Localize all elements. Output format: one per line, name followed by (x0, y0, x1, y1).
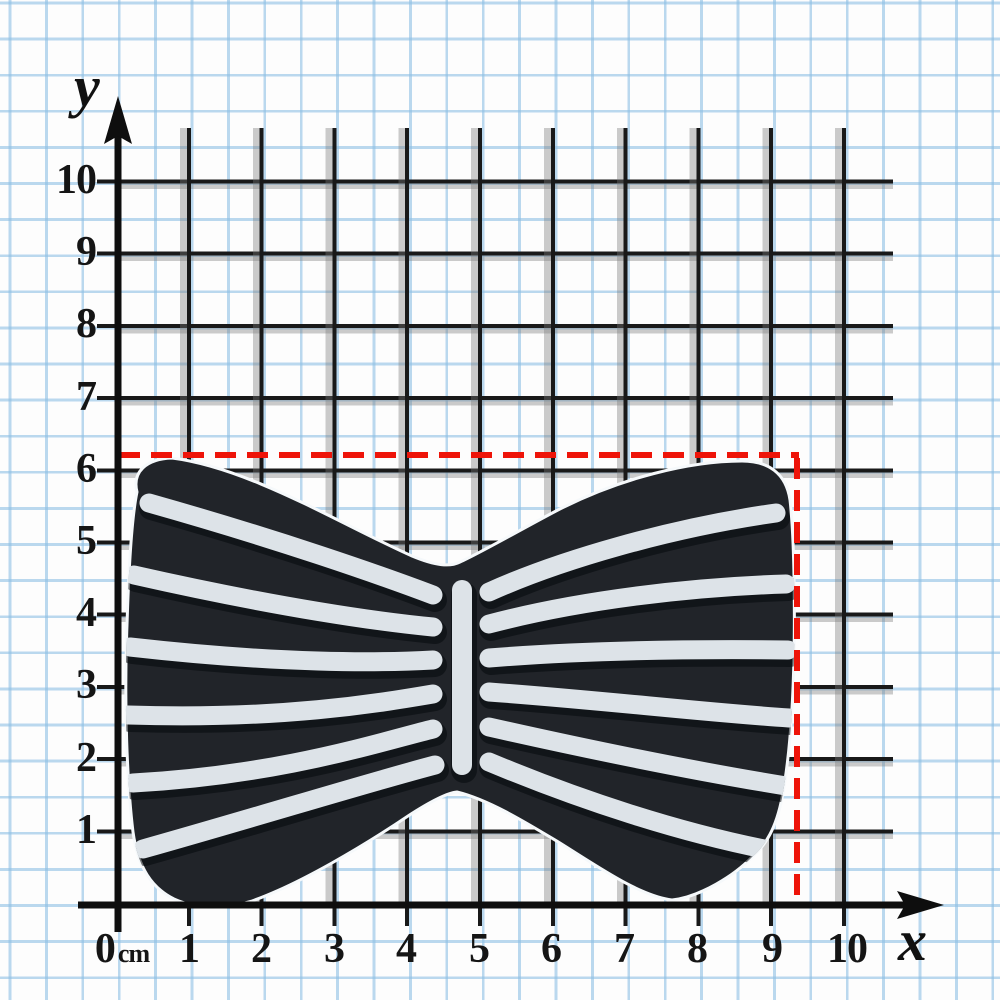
unit-label-cm: cm (118, 939, 149, 968)
y-tick-8: 8 (30, 303, 96, 345)
y-tick-1: 1 (30, 809, 96, 851)
x-tick-4: 4 (396, 928, 416, 970)
y-tick-2: 2 (30, 737, 96, 779)
x-tick-3: 3 (324, 928, 344, 970)
bow-knot-stripe (452, 580, 472, 775)
x-tick-0-value: 0 (95, 926, 115, 972)
diagram-overlay (0, 0, 1000, 1000)
y-tick-3: 3 (30, 664, 96, 706)
y-tick-4: 4 (30, 592, 96, 634)
y-tick-7: 7 (30, 376, 96, 418)
x-tick-2: 2 (251, 928, 271, 970)
measurement-diagram: y x 1 2 3 4 5 6 7 8 9 10 0cm 1 2 3 4 5 6… (0, 0, 1000, 1000)
x-tick-7: 7 (614, 928, 634, 970)
x-tick-8: 8 (687, 928, 707, 970)
x-tick-6: 6 (541, 928, 561, 970)
x-tick-9: 9 (762, 928, 782, 970)
y-tick-9: 9 (30, 231, 96, 273)
y-tick-6: 6 (30, 448, 96, 490)
x-tick-5: 5 (469, 928, 489, 970)
y-tick-10: 10 (30, 159, 96, 201)
x-tick-10: 10 (827, 928, 867, 970)
x-tick-1: 1 (179, 928, 199, 970)
x-axis-label: x (898, 912, 927, 970)
x-tick-0: 0cm (95, 928, 149, 970)
bow-tie-object (126, 458, 795, 907)
y-axis-label: y (74, 58, 100, 116)
y-tick-5: 5 (30, 520, 96, 562)
